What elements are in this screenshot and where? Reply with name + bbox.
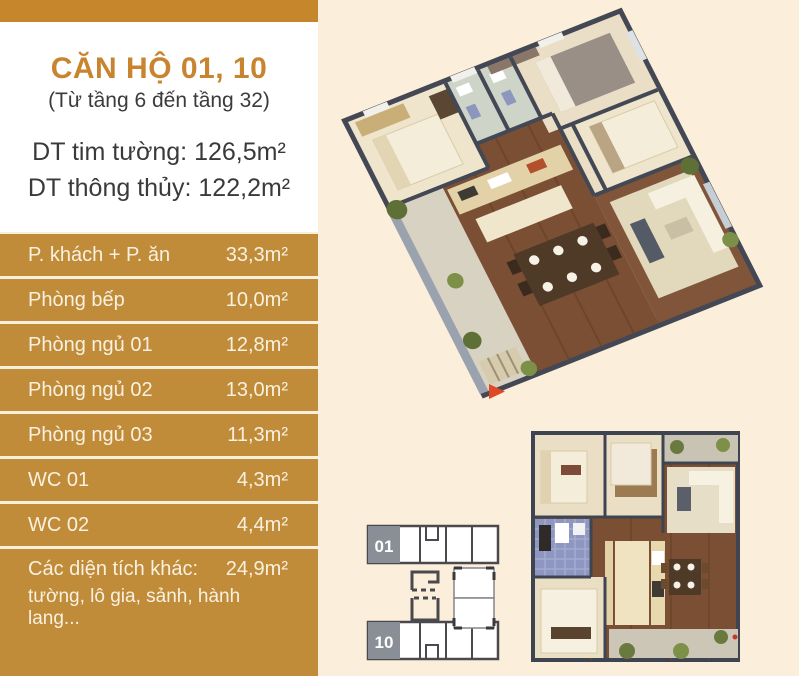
header-band — [0, 0, 318, 22]
plan-bed2 — [611, 443, 651, 485]
plan-kitchen-island — [615, 541, 649, 625]
metric-label: DT thông thủy: — [28, 174, 192, 202]
row-value: 24,9m² — [226, 558, 288, 581]
plan-sofa — [689, 471, 733, 485]
brochure-page: CĂN HỘ 01, 10 (Từ tầng 6 đến tầng 32) DT… — [0, 0, 799, 676]
metric-value: 122,2m² — [198, 174, 290, 202]
table-row: WC 01 4,3m² — [0, 459, 318, 501]
apartment-2d-floorplan — [531, 431, 741, 663]
building-key-plan: 01 10 — [362, 520, 502, 665]
metric-net-area: DT thông thủy:122,2m² — [0, 170, 318, 206]
row-value: 13,0m² — [226, 379, 288, 402]
table-row: Phòng ngủ 02 13,0m² — [0, 369, 318, 411]
metric-value: 126,5m² — [194, 138, 286, 166]
table-row: WC 02 4,4m² — [0, 504, 318, 546]
row-value: 33,3m² — [226, 244, 288, 267]
table-row: P. khách + P. ăn 33,3m² — [0, 234, 318, 276]
table-row: Phòng ngủ 03 11,3m² — [0, 414, 318, 456]
area-metrics: DT tim tường:126,5m² DT thông thủy:122,2… — [0, 134, 318, 206]
room-area-table: P. khách + P. ăn 33,3m² Phòng bếp 10,0m²… — [0, 232, 318, 676]
metric-gross-area: DT tim tường:126,5m² — [0, 134, 318, 170]
row-value: 4,4m² — [237, 514, 288, 537]
key-unit-10-label: 10 — [375, 633, 394, 652]
floor-range-subtitle: (Từ tầng 6 đến tầng 32) — [0, 89, 318, 113]
row-label: Phòng bếp — [28, 289, 125, 312]
apartment-3d-body — [342, 11, 762, 396]
apartment-3d-render — [319, 0, 799, 428]
metric-label: DT tim tường: — [32, 138, 187, 166]
table-row: Phòng ngủ 01 12,8m² — [0, 324, 318, 366]
row-label: WC 02 — [28, 514, 89, 537]
compass-mark — [733, 635, 738, 640]
row-label: Phòng ngủ 02 — [28, 379, 153, 402]
table-row-other-areas: Các diện tích khác: 24,9m² tường, lô gia… — [0, 549, 318, 676]
info-panel: CĂN HỘ 01, 10 (Từ tầng 6 đến tầng 32) DT… — [0, 22, 318, 232]
row-value: 11,3m² — [227, 424, 288, 447]
row-label: Phòng ngủ 03 — [28, 424, 153, 447]
table-row: Phòng bếp 10,0m² — [0, 279, 318, 321]
row-label: P. khách + P. ăn — [28, 244, 170, 267]
row-label: WC 01 — [28, 469, 89, 492]
plan-tv — [677, 487, 691, 511]
row-label: Phòng ngủ 01 — [28, 334, 153, 357]
row-value: 12,8m² — [226, 334, 288, 357]
page-title: CĂN HỘ 01, 10 — [0, 52, 318, 86]
row-line: Các diện tích khác: 24,9m² — [28, 558, 288, 581]
plan-dining-table — [669, 559, 701, 595]
row-value: 4,3m² — [237, 469, 288, 492]
key-core — [412, 568, 494, 628]
row-label: Các diện tích khác: — [28, 558, 198, 581]
key-unit-01-label: 01 — [375, 537, 394, 556]
row-value: 10,0m² — [226, 289, 288, 312]
row-sublabel: tường, lô gia, sảnh, hành lang... — [28, 586, 288, 630]
plan-bed3 — [541, 589, 597, 653]
